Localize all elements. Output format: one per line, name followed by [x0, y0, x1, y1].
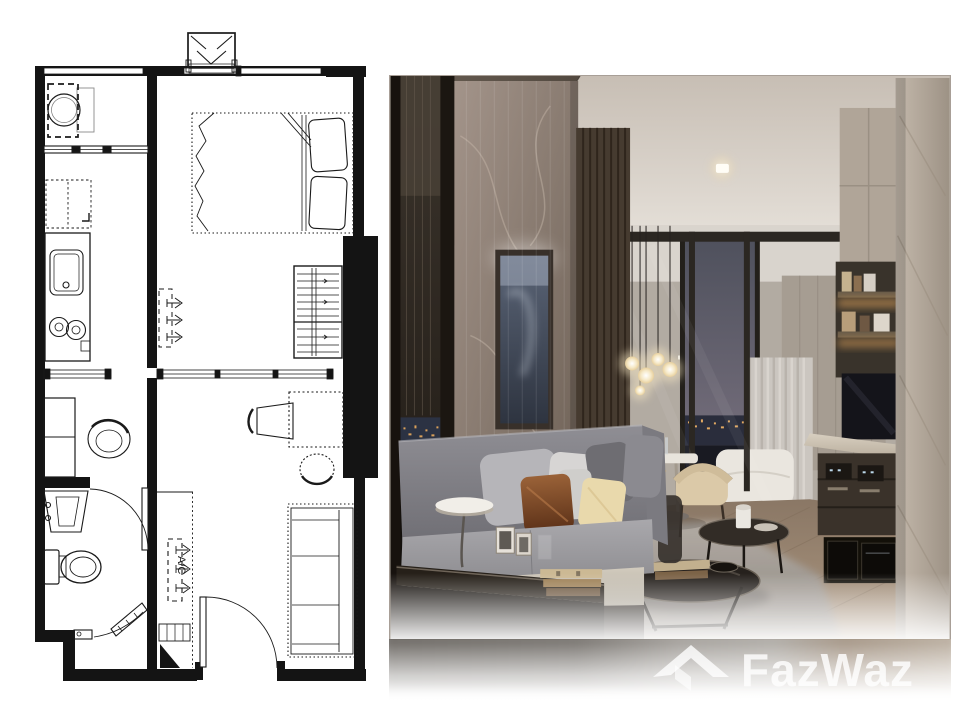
ac-label: A/C: [175, 556, 187, 574]
bathroom-door: [90, 488, 148, 550]
round-chair-icon: [300, 454, 334, 484]
tv-screen: [842, 373, 900, 439]
laundry-slider: [44, 146, 148, 153]
rust-pillow: [520, 473, 575, 533]
vanity-sink-icon: [44, 491, 88, 532]
photo-bottom-fade: [390, 573, 949, 639]
shower-door-icon: [74, 603, 147, 639]
wardrobe-icon: [294, 266, 342, 358]
marble-column: [896, 78, 950, 639]
interior-photo-render: [390, 76, 950, 639]
listing-image: A/C: [0, 0, 960, 720]
interior-photo: [389, 75, 951, 640]
kitchen-counter-icon: [45, 233, 90, 361]
sofa-icon: [288, 504, 357, 657]
desk-chair-icon: [249, 403, 294, 439]
wall-painting: [492, 243, 556, 430]
desk-icon: [289, 392, 343, 447]
refrigerator-icon: [46, 180, 91, 228]
entrance-door: [200, 597, 277, 668]
ac-closet: [157, 492, 193, 668]
plan-windows: [44, 66, 333, 379]
shelves: [836, 262, 900, 378]
mug-icon: [736, 504, 751, 528]
floor-plan: A/C: [0, 0, 388, 720]
dressing-cabinet-icon: [44, 398, 75, 477]
bottom-fade-strip: FazWaz: [389, 639, 951, 720]
toilet-icon: [44, 550, 101, 584]
white-gradient-overlay: [389, 639, 951, 720]
ac-ledge-unit-icon: [186, 33, 237, 73]
glass-object: [538, 535, 551, 559]
double-bed-icon: [192, 113, 353, 233]
washing-machine-icon: [48, 84, 94, 137]
ac-indoor-unit-bedroom: [159, 289, 182, 347]
armchair-icon: [88, 420, 130, 458]
